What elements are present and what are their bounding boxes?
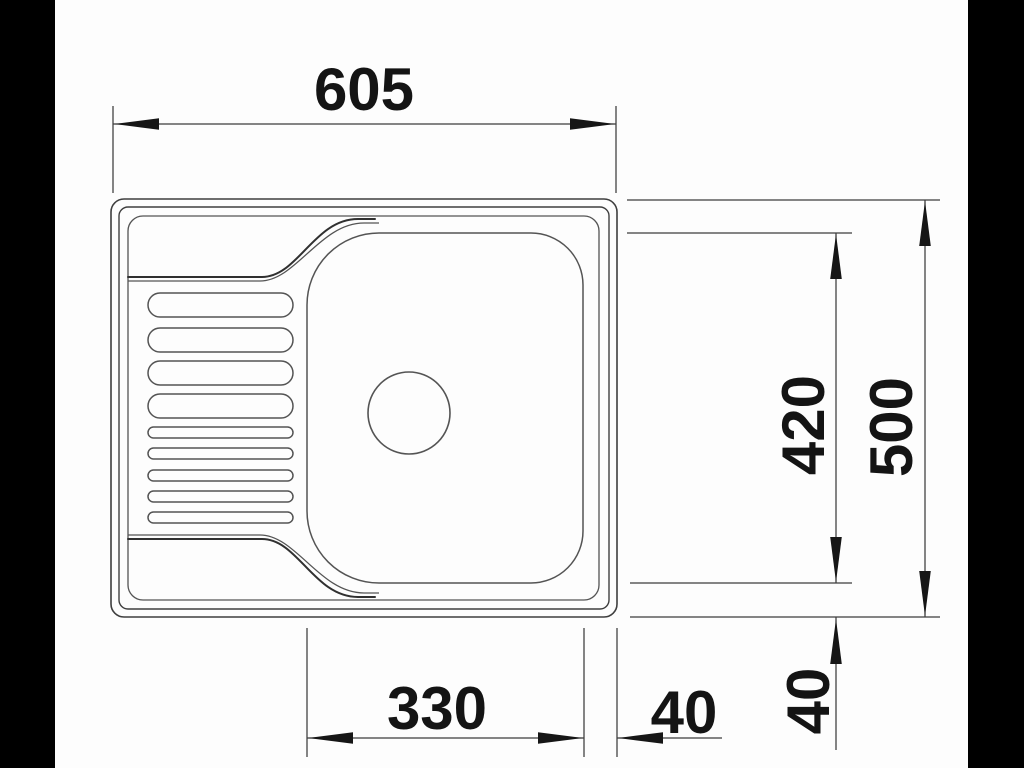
dimension-label-40-bottom: 40: [651, 679, 718, 746]
dimension-label-40-right: 40: [775, 668, 842, 735]
sink-technical-drawing: 605 330 40 420 500 40: [0, 0, 1024, 768]
dimension-label-500: 500: [858, 377, 925, 477]
dimension-label-420: 420: [770, 375, 837, 475]
dimension-label-605: 605: [314, 56, 414, 123]
dimension-label-330: 330: [387, 675, 487, 742]
screenshot-stage: 605 330 40 420 500 40: [0, 0, 1024, 768]
